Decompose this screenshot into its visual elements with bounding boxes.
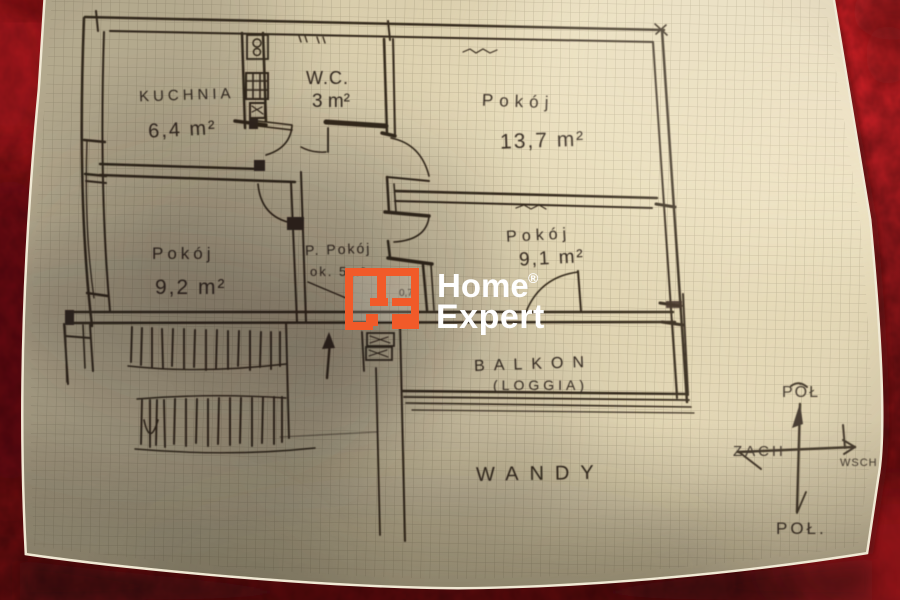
svg-text:Expert: Expert xyxy=(436,298,545,336)
svg-text:®: ® xyxy=(528,270,539,286)
